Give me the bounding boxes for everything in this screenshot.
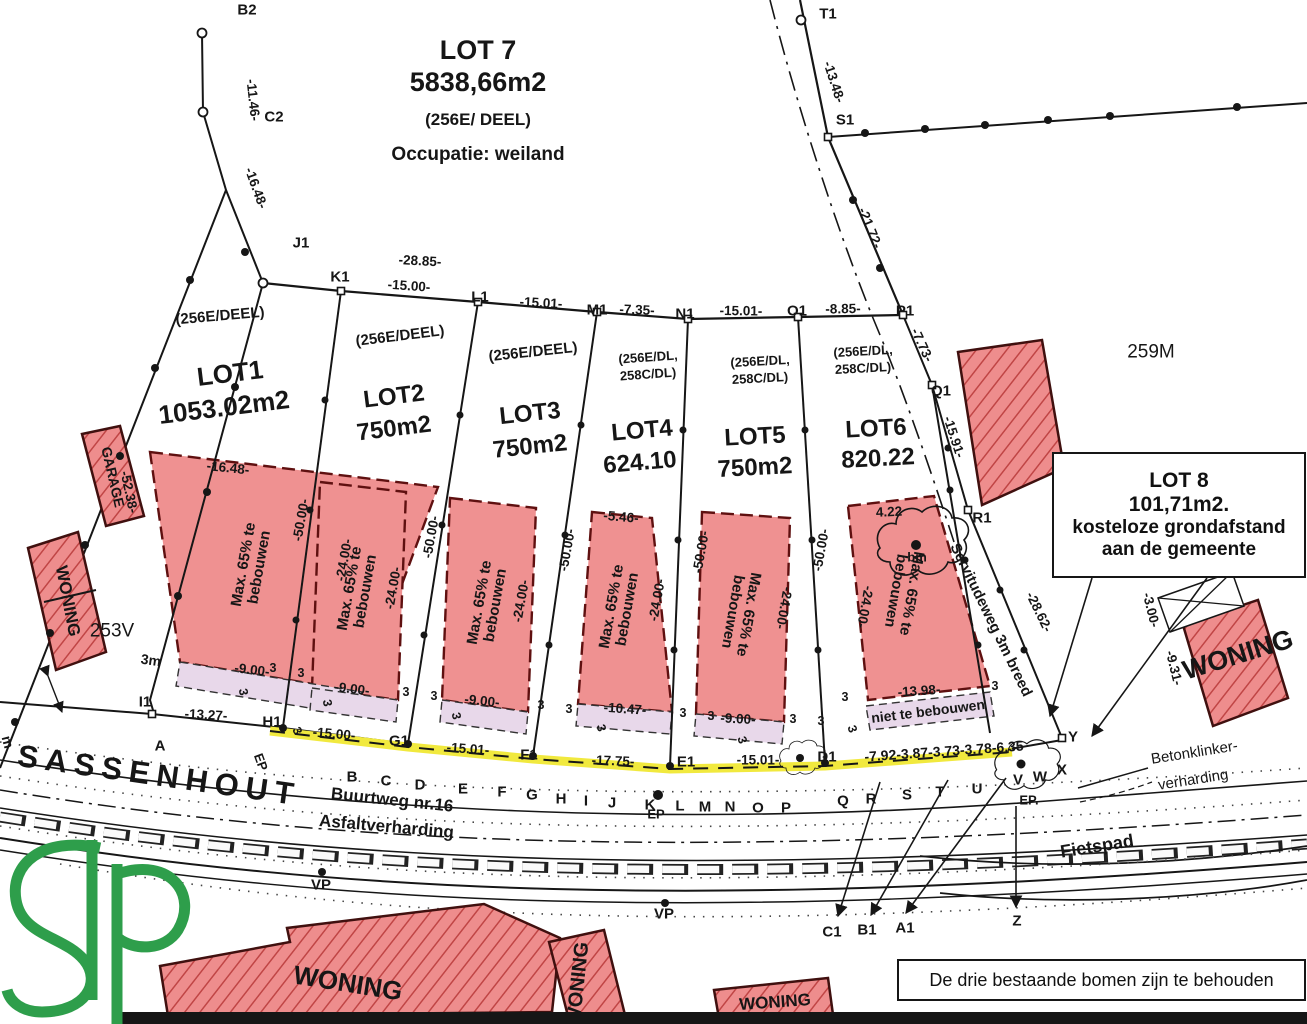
survey-point-d1: D1 bbox=[817, 750, 836, 765]
bottom-bar bbox=[112, 1012, 1307, 1024]
dimension-label: -11.46- bbox=[244, 78, 262, 121]
marker-label: 3 bbox=[680, 707, 687, 720]
sp-logo bbox=[7, 840, 185, 1024]
trees-note-box: De drie bestaande bomen zijn te behouden bbox=[897, 959, 1306, 1001]
survey-point-o1: O1 bbox=[787, 304, 807, 319]
road-letter: S bbox=[902, 788, 912, 803]
survey-point-f1: F1 bbox=[520, 748, 538, 763]
road-letter: L bbox=[675, 799, 684, 814]
lot5-name: LOT5 bbox=[724, 423, 787, 450]
road-letter: E bbox=[458, 782, 468, 797]
lot7-occupation: Occupatie: weiland bbox=[348, 145, 608, 165]
marker-label: 3m bbox=[140, 652, 162, 669]
road-letter: V bbox=[1013, 773, 1023, 788]
marker-label: 3 bbox=[708, 710, 715, 723]
lot8-note-1: kosteloze grondafstand bbox=[1072, 517, 1285, 539]
survey-point-t1: T1 bbox=[819, 7, 837, 22]
trees-note: De drie bestaande bomen zijn te behouden bbox=[929, 970, 1273, 991]
survey-point-q1: Q1 bbox=[931, 384, 951, 399]
survey-point-c1: C1 bbox=[822, 925, 841, 940]
dimension-label: -5.46- bbox=[603, 509, 639, 526]
marker-label: 3 bbox=[790, 713, 797, 726]
parcel-253v: 253V bbox=[90, 622, 134, 641]
marker-label: 3 bbox=[992, 680, 999, 693]
dimension-label: -9.00- bbox=[464, 692, 500, 709]
lot4-parcel-2: 258C/DL) bbox=[619, 366, 676, 383]
dimension-label: -28.85- bbox=[398, 253, 441, 269]
road-letter: O bbox=[752, 801, 764, 816]
survey-point-z: Z bbox=[1012, 914, 1021, 929]
road-letter: G bbox=[526, 788, 538, 803]
dimension-label: -15.00- bbox=[312, 725, 356, 742]
road-letter: H bbox=[556, 792, 567, 807]
dimension-label: -10.47- bbox=[603, 701, 647, 717]
parcel-259m: 259M bbox=[1127, 343, 1175, 362]
survey-point-j1: J1 bbox=[293, 236, 310, 251]
road-letter: C bbox=[381, 774, 392, 789]
marker-label: 3 bbox=[298, 667, 305, 680]
dimension-label: -8.85- bbox=[825, 302, 861, 316]
lot4-area: 624.10 bbox=[602, 448, 677, 478]
dimension-label: -13.98- bbox=[897, 683, 941, 699]
survey-point-k1: K1 bbox=[330, 270, 349, 285]
survey-point-b2: B2 bbox=[237, 3, 256, 18]
lot6-name: LOT6 bbox=[845, 415, 908, 442]
road-letter: M bbox=[699, 800, 712, 815]
lot4-parcel-1: (256E/DL, bbox=[618, 348, 678, 365]
survey-point-m1: M1 bbox=[587, 303, 608, 318]
marker-label: bm bbox=[907, 551, 927, 564]
marker-label: EP bbox=[647, 808, 664, 821]
lot5-parcel-1: (256E/DL, bbox=[730, 353, 790, 369]
road-letter: A bbox=[155, 739, 166, 754]
survey-point-n1: N1 bbox=[675, 307, 694, 322]
lot7-parcel: (256E/ DEEL) bbox=[348, 111, 608, 129]
lot6-parcel-1: (256E/DL, bbox=[833, 343, 893, 359]
dimension-label: -15.01- bbox=[719, 304, 762, 318]
lot8-note-2: aan de gemeente bbox=[1102, 539, 1256, 561]
dimension-label: -7.35- bbox=[619, 303, 655, 318]
marker-label: VP bbox=[311, 878, 331, 893]
survey-point-g1: G1 bbox=[389, 734, 409, 749]
lot1-name: LOT1 bbox=[195, 356, 264, 390]
dimension-label: -15.01- bbox=[519, 295, 562, 311]
road-letter: F bbox=[497, 785, 506, 800]
marker-label: 3 bbox=[818, 715, 825, 728]
marker-label: VP bbox=[654, 907, 674, 922]
marker-label: 3 bbox=[403, 686, 410, 699]
lot7-title: LOT 7 bbox=[348, 36, 608, 64]
road-letter: R bbox=[866, 792, 877, 807]
building-label: WONING bbox=[739, 991, 812, 1013]
survey-point-c2: C2 bbox=[264, 110, 283, 125]
road-letter: N bbox=[725, 800, 736, 815]
road-letter: J bbox=[608, 796, 616, 811]
survey-point-r1: R1 bbox=[972, 511, 991, 526]
marker-label: 3 bbox=[842, 691, 849, 704]
dimension-label: -15.01- bbox=[446, 741, 490, 757]
road-letter: D bbox=[415, 778, 426, 793]
dimension-label: -13.27- bbox=[184, 707, 227, 723]
lot6-parcel-2: 258C/DL) bbox=[835, 360, 892, 376]
road-letter: T bbox=[935, 785, 944, 800]
survey-point-s1: S1 bbox=[836, 113, 854, 128]
survey-point-b1: B1 bbox=[857, 923, 876, 938]
road-letter: Q bbox=[837, 794, 849, 809]
lot8-area: 101,71m2. bbox=[1129, 493, 1229, 517]
lot7-area: 5838,66m2 bbox=[348, 68, 608, 96]
marker-label: 3 bbox=[566, 703, 573, 716]
survey-point-e1: E1 bbox=[677, 755, 695, 770]
marker-label: 3 bbox=[431, 690, 438, 703]
road-letter: U bbox=[972, 782, 983, 797]
dimension-label: -9.00- bbox=[720, 711, 756, 726]
cadastral-plan: LOT 7 5838,66m2 (256E/ DEEL) Occupatie: … bbox=[0, 0, 1307, 1024]
lot8-info-box: LOT 8 101,71m2. kosteloze grondafstand a… bbox=[1052, 452, 1306, 578]
lot4-name: LOT4 bbox=[610, 416, 673, 445]
marker-label: 3 bbox=[270, 662, 277, 675]
lot7-info: LOT 7 5838,66m2 (256E/ DEEL) Occupatie: … bbox=[348, 36, 608, 164]
marker-label: EP. bbox=[1019, 794, 1038, 807]
survey-point-a1: A1 bbox=[895, 921, 914, 936]
lot6-area: 820.22 bbox=[841, 445, 916, 473]
dimension-label: -15.01- bbox=[737, 753, 780, 767]
survey-point-i1: I1 bbox=[139, 695, 152, 710]
survey-point-y: Y bbox=[1068, 730, 1078, 745]
marker-label: 3 bbox=[538, 699, 545, 712]
lot5-area: 750m2 bbox=[717, 454, 793, 482]
survey-point-l1: L1 bbox=[471, 290, 489, 305]
road-letter: W bbox=[1033, 770, 1047, 785]
lot8-title: LOT 8 bbox=[1149, 469, 1209, 493]
survey-point-p1: P1 bbox=[896, 304, 914, 319]
road-letter: B bbox=[347, 770, 358, 785]
survey-point-h1: H1 bbox=[262, 715, 281, 730]
lot5-parcel-2: 258C/DL) bbox=[732, 370, 789, 386]
dimension-label: -15.00- bbox=[387, 278, 431, 294]
road-letter: I bbox=[584, 794, 588, 809]
road-letter: P bbox=[781, 801, 791, 816]
dimension-label: -17.75- bbox=[591, 754, 634, 769]
dimension-label: 4.22 bbox=[876, 505, 903, 520]
lot3-name: LOT3 bbox=[498, 399, 562, 429]
road-letter: X bbox=[1057, 763, 1067, 778]
